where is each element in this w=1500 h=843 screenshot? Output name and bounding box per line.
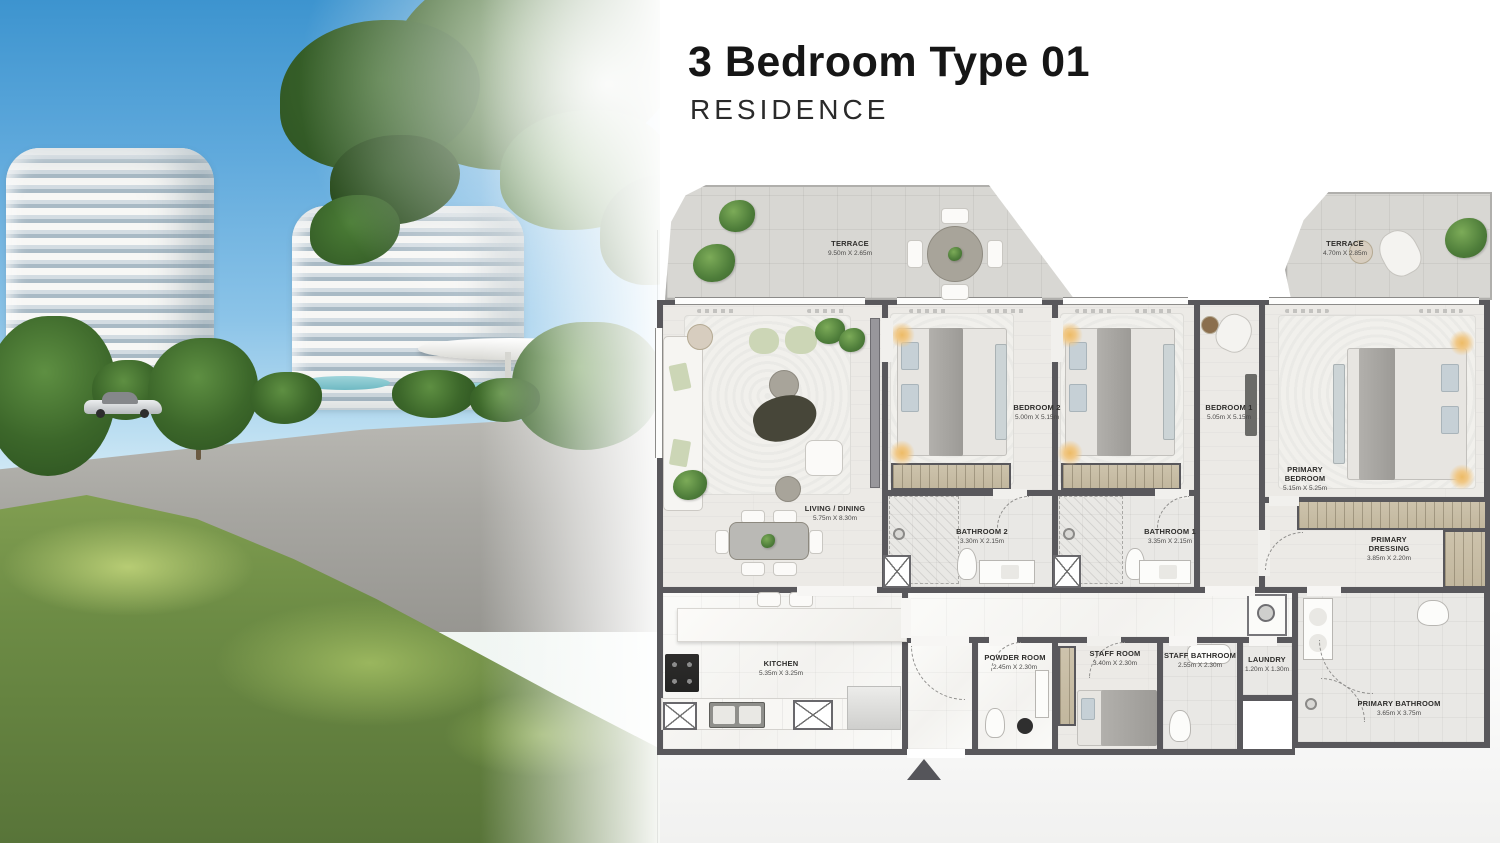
room-name: PRIMARY DRESSING (1351, 536, 1427, 554)
curtain-icon (909, 309, 949, 313)
room-label-primary-dressing: PRIMARY DRESSING 3.85m X 2.20m (1351, 536, 1427, 562)
room-dims: 5.00m X 5.15m (1009, 414, 1065, 422)
basin-icon (1159, 565, 1177, 579)
room-name: LIVING / DINING (803, 505, 867, 514)
shaft-box (1053, 555, 1081, 588)
room-dims: 3.65m X 3.75m (1357, 710, 1441, 718)
curtain-icon (1075, 309, 1115, 313)
toilet-icon (1169, 710, 1191, 742)
dining-chair-icon (809, 530, 823, 554)
room-label-living-dining: LIVING / DINING 5.75m X 8.30m (803, 505, 867, 523)
fridge-icon (847, 686, 901, 730)
pillow-icon (1081, 698, 1095, 720)
terrace-chair-icon (941, 284, 969, 300)
room-label-powder-room: POWDER ROOM 2.45m X 2.30m (979, 654, 1051, 672)
room-dims: 3.40m X 2.30m (1071, 660, 1159, 668)
floor-plan: TERRACE 9.50m X 2.65m TERRACE 4.70m X 2.… (657, 178, 1500, 778)
entrance-arrow (907, 759, 941, 780)
room-label-staff-bathroom: STAFF BATHROOM 2.55m X 2.30m (1163, 652, 1237, 670)
room-dims: 3.85m X 2.20m (1351, 555, 1427, 563)
curtain-icon (697, 309, 737, 313)
dining-chair-icon (715, 530, 729, 554)
vanity-icon (1035, 670, 1049, 718)
lamp-glow-icon (1449, 330, 1475, 356)
pouf-icon (749, 328, 779, 354)
room-label-staff-room: STAFF ROOM 3.40m X 2.30m (1071, 650, 1159, 668)
toilet-icon (957, 548, 977, 580)
toilet-icon (1417, 600, 1449, 626)
room-label-bedroom-2: BEDROOM 2 5.00m X 5.15m (1009, 404, 1065, 422)
side-table-icon (687, 324, 713, 350)
window (655, 328, 663, 458)
room-dims: 2.55m X 2.30m (1163, 662, 1237, 670)
sliding-door-panel (870, 318, 880, 488)
blanket-icon (1359, 348, 1395, 480)
hallway (905, 590, 1295, 640)
room-name: LAUNDRY (1240, 656, 1294, 665)
room-name: KITCHEN (745, 660, 817, 669)
wardrobe-icon (1297, 500, 1487, 530)
entrance-opening (907, 749, 965, 758)
side-table-icon (775, 476, 801, 502)
lamp-glow-icon (1449, 464, 1475, 490)
opening (901, 598, 911, 638)
terrace-chair-icon (941, 208, 969, 224)
room-label-primary-bedroom: PRIMARY BEDROOM 5.15m X 5.25m (1269, 466, 1341, 492)
shower-head-icon (1305, 698, 1317, 710)
opening (881, 318, 893, 362)
room-label-bathroom-1: BATHROOM 1 3.35m X 2.15m (1135, 528, 1205, 546)
room-name: BATHROOM 2 (947, 528, 1017, 537)
room-name: TERRACE (815, 240, 885, 249)
room-name: POWDER ROOM (979, 654, 1051, 663)
room-dims: 3.35m X 2.15m (1135, 538, 1205, 546)
room-label-kitchen: KITCHEN 5.35m X 3.25m (745, 660, 817, 678)
window (675, 297, 865, 305)
room-label-bathroom-2: BATHROOM 2 3.30m X 2.15m (947, 528, 1017, 546)
wardrobe-icon (891, 463, 1011, 490)
room-name: STAFF BATHROOM (1163, 652, 1237, 661)
room-name: PRIMARY BATHROOM (1357, 700, 1441, 709)
armchair-icon (805, 440, 843, 476)
room-dims: 5.05m X 5.15m (1201, 414, 1257, 422)
window (897, 297, 1042, 305)
curtain-icon (1285, 309, 1329, 313)
shower-head-icon (1063, 528, 1075, 540)
service-shaft (1240, 698, 1295, 755)
stove-icon (665, 654, 699, 692)
opening (1205, 586, 1255, 596)
shaft-box (793, 700, 833, 730)
opening (911, 636, 969, 646)
room-label-primary-bathroom: PRIMARY BATHROOM 3.65m X 3.75m (1357, 700, 1441, 718)
kitchen-island-icon (677, 608, 907, 642)
page-title: 3 Bedroom Type 01 (688, 38, 1090, 87)
bed-bench-icon (1333, 364, 1345, 464)
room-label-terrace-left: TERRACE 9.50m X 2.65m (815, 240, 885, 258)
blanket-icon (929, 328, 963, 456)
room-dims: 4.70m X 2.85m (1313, 250, 1377, 258)
dining-chair-icon (741, 562, 765, 576)
room-label-bedroom-1: BEDROOM 1 5.05m X 5.15m (1201, 404, 1257, 422)
basin-icon (1017, 718, 1033, 734)
opening (1249, 636, 1277, 646)
room-dims: 9.50m X 2.65m (815, 250, 885, 258)
washer-drum (1257, 604, 1275, 622)
room-dims: 5.35m X 3.25m (745, 670, 817, 678)
curtain-icon (807, 309, 847, 313)
lamp-glow-icon (889, 440, 915, 466)
building-render-photo (0, 0, 660, 843)
opening (1169, 636, 1197, 646)
page: { "header": { "title": "3 Bedroom Type 0… (0, 0, 1500, 843)
bar-stool-icon (757, 592, 781, 607)
wardrobe-icon (1061, 463, 1181, 490)
sink-basin (713, 706, 735, 724)
shaft-box (883, 555, 911, 588)
curtain-icon (1419, 309, 1463, 313)
shaft-box (663, 702, 697, 730)
lamp-glow-icon (1057, 440, 1083, 466)
window (1269, 297, 1479, 305)
room-label-laundry: LAUNDRY 1.20m X 1.30m (1240, 656, 1294, 674)
room-label-terrace-right: TERRACE 4.70m X 2.85m (1313, 240, 1377, 258)
pillow-icon (901, 384, 919, 412)
basin-icon (1309, 608, 1327, 626)
room-name: TERRACE (1313, 240, 1377, 249)
pillow-icon (1441, 406, 1459, 434)
shower-head-icon (893, 528, 905, 540)
terrace-chair-icon (907, 240, 923, 268)
room-name: BEDROOM 2 (1009, 404, 1065, 413)
room-dims: 1.20m X 1.30m (1240, 666, 1294, 674)
pillow-icon (1441, 364, 1459, 392)
room-dims: 2.45m X 2.30m (979, 664, 1051, 672)
opening (1051, 318, 1063, 362)
room-dims: 3.30m X 2.15m (947, 538, 1017, 546)
photo-fade (480, 0, 660, 843)
blanket-icon (1097, 328, 1131, 456)
opening (1307, 586, 1341, 596)
terrace-chair-icon (987, 240, 1003, 268)
pillow-icon (1069, 384, 1087, 412)
page-subtitle: RESIDENCE (690, 94, 889, 126)
dining-chair-icon (773, 562, 797, 576)
wardrobe-icon (1443, 530, 1487, 588)
pouf-icon (785, 326, 817, 354)
bed-bench-icon (995, 344, 1007, 440)
room-dims: 5.15m X 5.25m (1269, 485, 1341, 493)
curtain-icon (987, 309, 1027, 313)
bed-bench-icon (1163, 344, 1175, 440)
room-name: BATHROOM 1 (1135, 528, 1205, 537)
room-name: STAFF ROOM (1071, 650, 1159, 659)
room-name: PRIMARY BEDROOM (1269, 466, 1341, 484)
room-dims: 5.75m X 8.30m (803, 515, 867, 523)
window (1063, 297, 1188, 305)
curtain-icon (1135, 309, 1175, 313)
opening (1269, 496, 1299, 506)
toilet-icon (985, 708, 1005, 738)
blanket-icon (1101, 690, 1157, 746)
opening (797, 586, 877, 596)
room-name: BEDROOM 1 (1201, 404, 1257, 413)
sink-basin (739, 706, 761, 724)
basin-icon (1001, 565, 1019, 579)
